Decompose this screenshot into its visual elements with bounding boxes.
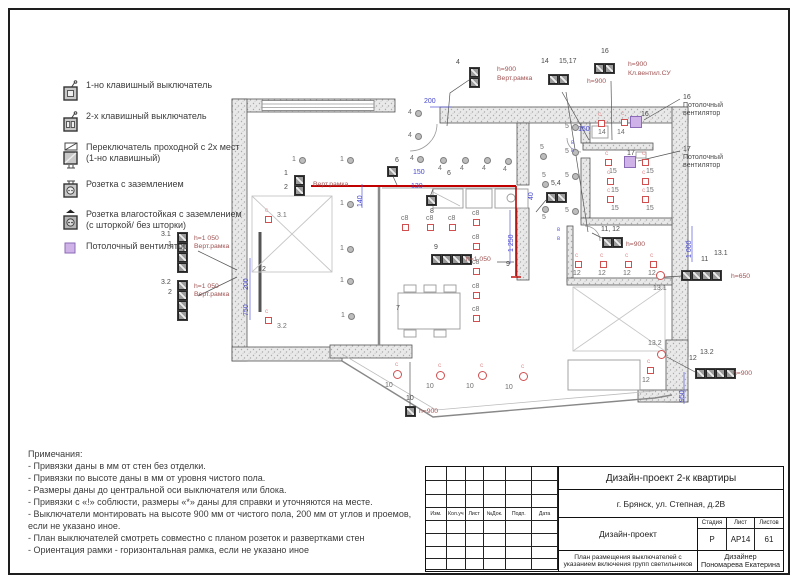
stamp-empty-cell — [532, 534, 558, 547]
stamp-empty-cell — [426, 534, 447, 547]
light-number-label: 15 — [646, 168, 654, 176]
ceiling-light-marker — [505, 158, 512, 165]
plan-text-label: 5,4 — [551, 180, 561, 188]
light-number-label: 1 — [340, 277, 344, 285]
stamp-empty-cell — [426, 521, 447, 534]
switch-gang — [178, 281, 187, 290]
stamp-empty-cell — [532, 547, 558, 559]
wall-light-round-marker — [478, 371, 487, 380]
ceiling-fan-icon — [62, 241, 86, 260]
light-number-label: 5 — [542, 214, 546, 222]
light-number-label: 1 — [340, 200, 344, 208]
ceiling-light-marker — [348, 313, 355, 320]
light-number-label: 15 — [646, 205, 654, 213]
group-c-label: с — [438, 362, 441, 369]
ceiling-light-marker — [440, 157, 447, 164]
light-number-label: 10 — [505, 384, 513, 392]
group-c-label: с — [395, 361, 398, 368]
switch-block-marker — [426, 195, 437, 206]
switch-gang — [712, 271, 721, 280]
switch-2key-icon — [62, 111, 86, 137]
dimension-label: 950 — [679, 390, 687, 402]
stamp-empty-cell — [506, 521, 532, 534]
group-c-label: с — [647, 358, 650, 365]
legend-item: Розетка влагостойкая с заземлением (с шт… — [62, 209, 248, 236]
drawing-sheet: 111111444444455555553.1с3.2с14с14с15с15с… — [0, 0, 800, 583]
ceiling-light-marker — [462, 157, 469, 164]
switch-block-marker — [469, 67, 480, 88]
plan-text-label: вентилятор — [683, 110, 720, 118]
ceiling-light-marker — [417, 156, 424, 163]
light-number-label: с8 — [472, 234, 479, 242]
revision-stamp: Изм.Кол.учЛист№Док.Подп.Дата — [426, 467, 559, 571]
light-number-label: с8 — [448, 215, 455, 223]
blue-mark-label: в — [557, 236, 560, 242]
stamp-empty-cell — [484, 521, 507, 534]
switch-gang — [682, 271, 691, 280]
plan-text-label: Потолочный — [683, 154, 723, 162]
plan-text-label: 13.2 — [700, 349, 714, 357]
switch-gang — [603, 238, 612, 247]
wall-light-round-marker — [393, 370, 402, 379]
dimension-label: 150 — [578, 126, 590, 134]
plan-text-label: 1 — [284, 170, 288, 178]
notes: Примечания: - Привязки даны в мм от стен… — [28, 448, 430, 556]
stamp-header-cell: Дата — [532, 508, 558, 521]
wall-light-square-marker — [650, 261, 657, 268]
switch-gang — [702, 271, 711, 280]
ceiling-light-marker — [542, 181, 549, 188]
mount-height-annotation: h=650 — [731, 273, 750, 281]
notes-title: Примечания: — [28, 448, 430, 460]
switch-gang — [547, 193, 556, 202]
switch-block-marker — [594, 63, 615, 74]
legend-item-label: Потолочный вентилятор — [86, 241, 188, 252]
fan-number-label: 16 — [641, 111, 649, 119]
wall-light-square-marker — [607, 196, 614, 203]
wall-light-square-marker — [642, 159, 649, 166]
note-line: - Привязки с «!» соблюсти, размеры «*» д… — [28, 496, 430, 508]
legend-item: 1-но клавишный выключатель — [62, 80, 248, 106]
group-c-label: с — [575, 252, 578, 259]
sheet-label: Лист — [727, 518, 755, 529]
mount-height-annotation: h=1 050 — [466, 256, 491, 264]
light-number-label: 5 — [565, 207, 569, 215]
plan-text-label: вентилятор — [683, 162, 720, 170]
stamp-empty-cell — [466, 559, 484, 570]
dimension-label: 200 — [424, 98, 436, 106]
light-number-label: 5 — [540, 144, 544, 152]
stamp-empty-cell — [506, 467, 532, 481]
dimension-label: 200 — [243, 278, 251, 290]
stamp-empty-cell — [466, 481, 484, 495]
switch-block-marker — [387, 166, 398, 177]
group-c-label: с — [621, 110, 624, 117]
plan-text-label: 14 — [541, 58, 549, 66]
plan-text-label: 2 — [262, 266, 266, 274]
plan-text-label: 7 — [396, 305, 400, 313]
ceiling-light-marker — [299, 157, 306, 164]
switch-block-marker — [405, 406, 416, 417]
note-line: - План выключателей смотреть совместно с… — [28, 532, 430, 544]
stamp-empty-cell — [447, 559, 466, 570]
switch-block-marker — [681, 270, 722, 281]
light-number-label: 4 — [438, 165, 442, 173]
light-number-label: 15 — [646, 187, 654, 195]
socket-ground-icon — [62, 179, 86, 204]
ceiling-light-marker — [347, 157, 354, 164]
wall-light-square-marker — [402, 224, 409, 231]
stamp-empty-cell — [532, 521, 558, 534]
light-number-label: 14 — [598, 129, 606, 137]
stamp-empty-cell — [447, 481, 466, 495]
stamp-empty-cell — [426, 495, 447, 508]
switch-gang — [178, 301, 187, 310]
light-number-label: 14 — [617, 129, 625, 137]
light-number-label: 4 — [408, 109, 412, 117]
note-line: - Привязки по высоте даны в мм от уровня… — [28, 472, 430, 484]
sheet-value: АР14 — [727, 529, 755, 550]
wall-light-round-marker — [519, 372, 528, 381]
mount-height-annotation: h=900 — [628, 61, 647, 69]
blue-mark-label: в — [571, 140, 574, 146]
drawing-title: План размещения выключателей с указанием… — [559, 551, 697, 571]
wall-light-square-marker — [605, 159, 612, 166]
note-line: - Размеры даны до центральной оси выключ… — [28, 484, 430, 496]
stamp-empty-cell — [447, 521, 466, 534]
plan-text-label: 13.1 — [714, 250, 728, 258]
plan-text-label: Потолочный — [683, 102, 723, 110]
switch-gang — [716, 369, 725, 378]
plan-text-label: 11 — [701, 256, 708, 264]
switch-block-marker — [602, 237, 623, 248]
note-line: - Привязки даны в мм от стен без отделки… — [28, 460, 430, 472]
group-c-label: с — [625, 252, 628, 259]
wall-light-square-marker — [575, 261, 582, 268]
legend: 1-но клавишный выключатель2-х клавишный … — [62, 80, 248, 265]
stage-value: Р — [698, 529, 727, 550]
wall-light-square-marker — [427, 224, 434, 231]
light-number-label: 1 — [340, 156, 344, 164]
plan-text-label: 9 — [434, 244, 438, 252]
group-c-label: с — [480, 362, 483, 369]
dimension-label: 1 250 — [508, 234, 516, 252]
group-c-label: с — [642, 169, 645, 176]
light-number-label: 4 — [503, 166, 507, 174]
group-c-label: с — [265, 207, 268, 214]
sheets-value: 61 — [755, 529, 783, 550]
switch-gang — [452, 255, 461, 264]
legend-item-label: Переключатель проходной с 2х мест (1-но … — [86, 142, 248, 164]
switch-gang — [442, 255, 451, 264]
dimension-label: 140 — [357, 195, 365, 207]
mount-height-annotation: h=1 050 — [194, 283, 219, 291]
switch-block-marker — [177, 280, 188, 321]
legend-item-label: Розетка влагостойкая с заземлением (с шт… — [86, 209, 248, 231]
dimension-label: 130 — [411, 183, 423, 191]
stamp-empty-cell — [426, 547, 447, 559]
group-c-label: с — [598, 111, 601, 118]
mount-height-annotation: h=900 — [497, 66, 516, 74]
switch-gang — [605, 64, 614, 73]
stamp-header-cell: Изм. — [426, 508, 447, 521]
fan-number-label: 17 — [627, 150, 635, 158]
switch-gang — [549, 75, 558, 84]
light-number-label: 3.2 — [277, 323, 287, 331]
stamp-empty-cell — [484, 534, 507, 547]
switch-gang — [557, 193, 566, 202]
light-number-label: с8 — [472, 306, 479, 314]
stamp-empty-cell — [506, 495, 532, 508]
dimension-label: 150 — [413, 169, 425, 177]
light-number-label: 12 — [623, 270, 631, 278]
wall-light-square-marker — [625, 261, 632, 268]
switch-gang — [470, 68, 479, 77]
switch-gang — [388, 167, 397, 176]
switch-gang — [470, 78, 479, 87]
switch-gang — [692, 271, 701, 280]
blue-mark-label: в — [571, 148, 574, 154]
switch-gang — [613, 238, 622, 247]
designer-name: Пономарева Екатерина — [701, 561, 780, 570]
wall-light-square-marker — [647, 367, 654, 374]
ceiling-light-marker — [415, 110, 422, 117]
ceiling-light-marker — [347, 246, 354, 253]
light-number-label: 5 — [565, 123, 569, 131]
switch-pass-icon — [62, 142, 86, 174]
project-address: г. Брянск, ул. Степная, д.2В — [559, 490, 783, 518]
light-number-label: 4 — [408, 132, 412, 140]
wall-light-round-marker — [656, 271, 665, 280]
wall-light-square-marker — [473, 219, 480, 226]
legend-item: 2-х клавишный выключатель — [62, 111, 248, 137]
plan-text-label: 3.2 — [161, 279, 171, 287]
stamp-empty-cell — [484, 495, 507, 508]
stamp-empty-cell — [426, 481, 447, 495]
group-c-label: с — [265, 308, 268, 315]
stamp-header-cell: Кол.уч — [447, 508, 466, 521]
light-number-label: 13.1 — [653, 285, 667, 293]
switch-gang — [427, 196, 436, 205]
group-c-label: с — [600, 252, 603, 259]
legend-item: Потолочный вентилятор — [62, 241, 248, 260]
mount-height-annotation: h=900 — [733, 370, 752, 378]
sheets-label: Листов — [755, 518, 783, 529]
mount-height-annotation: Кл.вентил.СУ — [628, 70, 671, 78]
mount-height-annotation: Верт.рамка — [497, 75, 532, 83]
wall-light-square-marker — [265, 216, 272, 223]
light-number-label: 5 — [565, 148, 569, 156]
ceiling-light-marker — [415, 133, 422, 140]
wall-light-round-marker — [657, 350, 666, 359]
plan-text-label: 10 — [406, 395, 414, 403]
switch-gang — [295, 176, 304, 185]
stamp-empty-cell — [466, 495, 484, 508]
switch-block-marker — [546, 192, 567, 203]
plan-text-label: 16 — [683, 94, 691, 102]
light-number-label: 12 — [648, 270, 656, 278]
legend-item: Розетка с заземлением — [62, 179, 248, 204]
project-title: Дизайн-проект 2-к квартиры — [559, 467, 783, 490]
wall-light-square-marker — [642, 178, 649, 185]
switch-block-marker — [548, 74, 569, 85]
group-c-label: с — [607, 187, 610, 194]
stamp-empty-cell — [484, 547, 507, 559]
stamp-empty-cell — [447, 495, 466, 508]
switch-gang — [178, 311, 187, 320]
group-c-label: с — [642, 150, 645, 157]
plan-text-label: 2 — [284, 184, 288, 192]
stamp-empty-cell — [466, 534, 484, 547]
socket-wet-icon — [62, 209, 86, 236]
switch-gang — [178, 291, 187, 300]
switch-gang — [696, 369, 705, 378]
switch-block-marker — [695, 368, 736, 379]
stamp-empty-cell — [466, 467, 484, 481]
switch-1key-icon — [62, 80, 86, 106]
ceiling-light-marker — [484, 157, 491, 164]
plan-text-label: 6 — [447, 170, 451, 178]
light-number-label: 12 — [642, 377, 650, 385]
note-line: - Ориентация рамки - горизонтальная рамк… — [28, 544, 430, 556]
wall-light-square-marker — [473, 292, 480, 299]
legend-item-label: 1-но клавишный выключатель — [86, 80, 212, 91]
ceiling-light-marker — [542, 206, 549, 213]
switch-gang — [559, 75, 568, 84]
group-c-label: с — [607, 169, 610, 176]
stamp-empty-cell — [466, 547, 484, 559]
plan-text-label: 16 — [601, 48, 609, 56]
stamp-empty-cell — [532, 481, 558, 495]
group-c-label: с — [605, 150, 608, 157]
light-number-label: с8 — [472, 210, 479, 218]
ceiling-light-marker — [572, 208, 579, 215]
mount-height-annotation: h=900 — [587, 78, 606, 86]
light-number-label: 1 — [292, 156, 296, 164]
stamp-empty-cell — [484, 481, 507, 495]
legend-item-label: 2-х клавишный выключатель — [86, 111, 207, 122]
mount-height-annotation: h=900 — [626, 241, 645, 249]
light-number-label: 15 — [611, 205, 619, 213]
designer-cell: Дизайнер Пономарева Екатерина — [698, 551, 783, 571]
note-line: - Выключатели монтировать на высоте 900 … — [28, 508, 430, 532]
plan-text-label: 6 — [395, 157, 399, 165]
light-number-label: 10 — [466, 383, 474, 391]
legend-item-label: Розетка с заземлением — [86, 179, 184, 190]
stamp-empty-cell — [532, 495, 558, 508]
switch-gang — [432, 255, 441, 264]
group-c-label: с — [650, 252, 653, 259]
switch-gang — [295, 186, 304, 195]
light-number-label: 4 — [460, 165, 464, 173]
plan-text-label: 4 — [456, 59, 460, 67]
stamp-empty-cell — [484, 467, 507, 481]
mount-height-annotation: Верт.рамка — [313, 181, 348, 189]
stamp-empty-cell — [506, 481, 532, 495]
plan-text-label: 15,17 — [559, 58, 577, 66]
legend-item: Переключатель проходной с 2х мест (1-но … — [62, 142, 248, 174]
stamp-header-cell: Лист — [466, 508, 484, 521]
dimension-label: 40 — [528, 192, 536, 200]
switch-gang — [706, 369, 715, 378]
light-number-label: 4 — [482, 165, 486, 173]
switch-gang — [595, 64, 604, 73]
light-number-label: 3.1 — [277, 212, 287, 220]
stamp-empty-cell — [426, 467, 447, 481]
plan-text-label: 9 — [506, 261, 510, 269]
stamp-empty-cell — [532, 559, 558, 570]
wall-light-square-marker — [598, 120, 605, 127]
light-number-label: 12 — [573, 270, 581, 278]
light-number-label: 12 — [598, 270, 606, 278]
ceiling-light-marker — [347, 201, 354, 208]
light-number-label: 5 — [565, 172, 569, 180]
stage-sheet-table: Стадия Лист Листов Р АР14 61 — [698, 518, 783, 551]
doc-type: Дизайн-проект — [559, 518, 697, 551]
plan-text-label: 12 — [689, 355, 697, 363]
wall-light-square-marker — [265, 317, 272, 324]
stamp-empty-cell — [466, 521, 484, 534]
wall-light-square-marker — [621, 119, 628, 126]
title-block: Изм.Кол.учЛист№Док.Подп.Дата Дизайн-прое… — [425, 466, 784, 572]
ceiling-light-marker — [572, 173, 579, 180]
light-number-label: с8 — [472, 283, 479, 291]
wall-light-round-marker — [436, 371, 445, 380]
wall-light-square-marker — [473, 268, 480, 275]
plan-text-label: 11, 12 — [601, 226, 620, 234]
light-number-label: с8 — [401, 215, 408, 223]
stamp-header-cell: Подп. — [506, 508, 532, 521]
switch-gang — [406, 407, 415, 416]
light-number-label: 15 — [611, 187, 619, 195]
light-number-label: 1 — [341, 312, 345, 320]
wall-light-square-marker — [642, 196, 649, 203]
blue-mark-label: в — [557, 227, 560, 233]
light-number-label: 10 — [426, 383, 434, 391]
stamp-empty-cell — [506, 534, 532, 547]
light-number-label: 13.2 — [648, 340, 662, 348]
wall-light-square-marker — [600, 261, 607, 268]
stamp-empty-cell — [426, 559, 447, 570]
group-c-label: с — [642, 187, 645, 194]
light-number-label: 1 — [340, 245, 344, 253]
light-number-label: 5 — [542, 172, 546, 180]
ceiling-light-marker — [347, 278, 354, 285]
light-number-label: с8 — [426, 215, 433, 223]
stamp-empty-cell — [532, 467, 558, 481]
wall-light-square-marker — [449, 224, 456, 231]
stamp-empty-cell — [484, 559, 507, 570]
mount-height-annotation: h=900 — [419, 408, 438, 416]
plan-text-label: 2 — [168, 289, 172, 297]
group-c-label: с — [521, 363, 524, 370]
ceiling-light-marker — [540, 153, 547, 160]
stamp-empty-cell — [447, 534, 466, 547]
dimension-label: 750 — [243, 304, 251, 316]
stamp-empty-cell — [506, 559, 532, 570]
mount-height-annotation: Верт.рамка — [194, 291, 229, 299]
stamp-empty-cell — [447, 467, 466, 481]
stamp-header-cell: №Док. — [484, 508, 507, 521]
stamp-empty-cell — [447, 547, 466, 559]
dimension-label: 1 000 — [686, 240, 694, 258]
light-number-label: 10 — [385, 382, 393, 390]
wall-light-square-marker — [607, 178, 614, 185]
stage-label: Стадия — [698, 518, 727, 529]
plan-text-label: 8 — [430, 208, 434, 216]
light-number-label: 4 — [410, 155, 414, 163]
switch-block-marker — [294, 175, 305, 196]
